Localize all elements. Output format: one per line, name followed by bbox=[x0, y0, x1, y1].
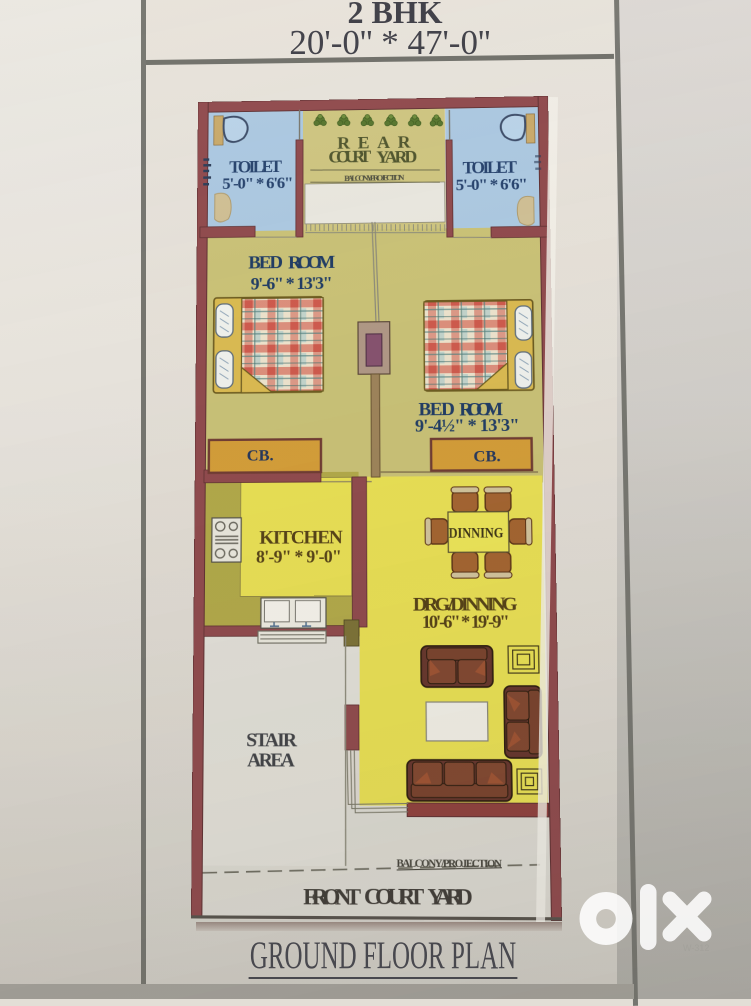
svg-text:W-312: W-312 bbox=[683, 943, 709, 953]
